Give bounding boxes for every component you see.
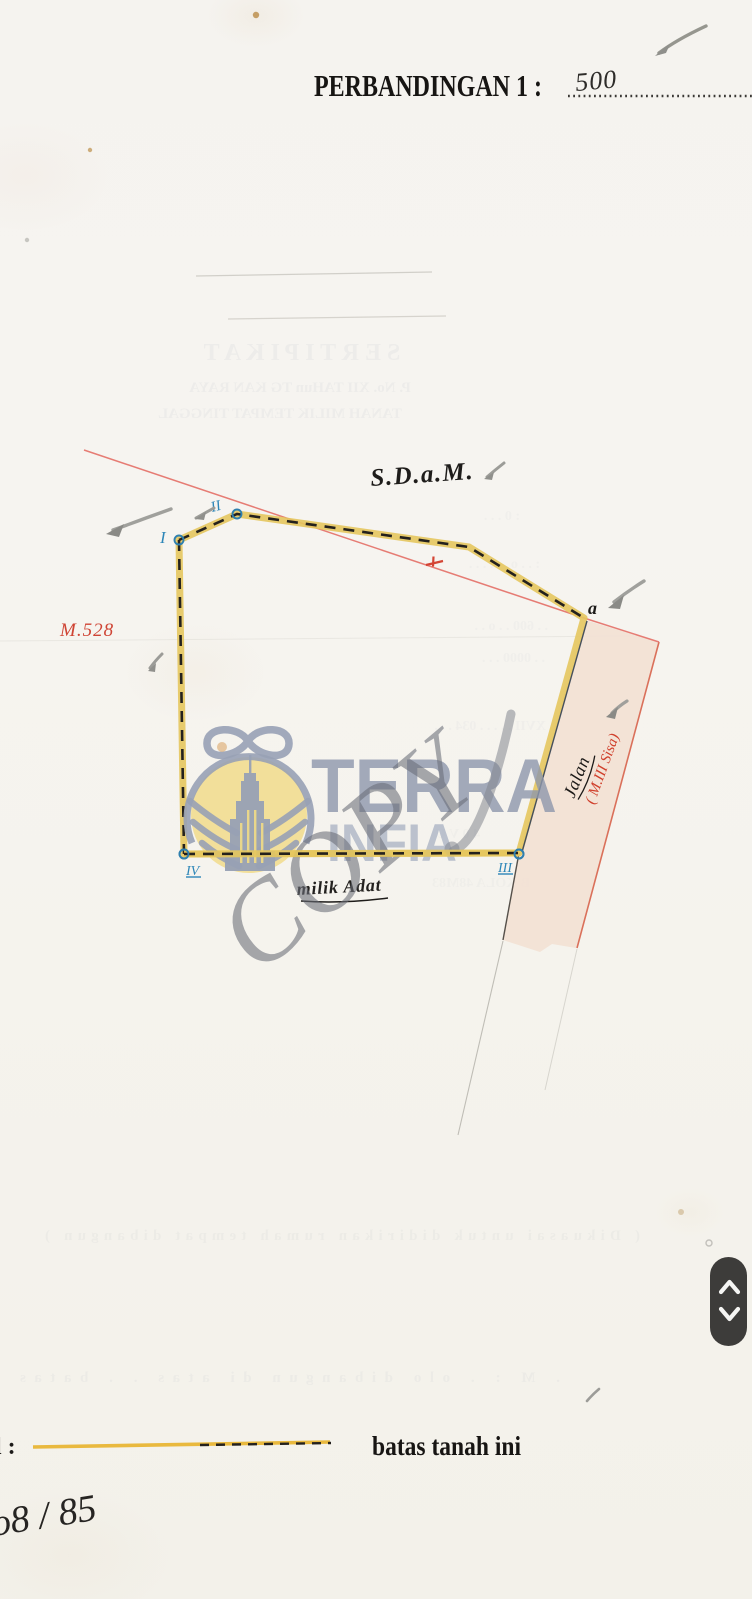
svg-text:I: I bbox=[159, 528, 167, 547]
svg-text:: 0 . . .: : 0 . . . bbox=[484, 509, 520, 524]
svg-text:a: a bbox=[588, 598, 597, 618]
svg-text:S.D.a.M.: S.D.a.M. bbox=[370, 458, 475, 492]
svg-text:. . XVII . . . . . 034 . . .: . . XVII . . . . . 034 . . . bbox=[434, 719, 560, 734]
svg-text:. . 600 . . o . .: . . 600 . . o . . bbox=[475, 619, 549, 634]
svg-text:II: II bbox=[208, 498, 224, 516]
svg-text:( Dikuasai untuk didirikan: ( Dikuasai untuk didirikan rumah tempat … bbox=[45, 1228, 640, 1244]
svg-text:to8 / 85: to8 / 85 bbox=[0, 1487, 99, 1547]
svg-text:batas tanah ini: batas tanah ini bbox=[372, 1431, 521, 1461]
svg-text:. M : . olo dibangun di at: . M : . olo dibangun di atas . . batas bbox=[20, 1370, 560, 1386]
svg-text:P. No. XII TAHun TG KAN RAYA: P. No. XII TAHun TG KAN RAYA bbox=[189, 380, 411, 396]
svg-text:M.528: M.528 bbox=[59, 620, 114, 641]
svg-text:S E R T I P I K A T: S E R T I P I K A T bbox=[204, 340, 401, 366]
svg-text:TANAH MILIK TEMPAT TINGGAL: TANAH MILIK TEMPAT TINGGAL bbox=[158, 406, 402, 422]
svg-text:l :: l : bbox=[0, 1434, 16, 1460]
svg-text:PERBANDINGAN 1 :: PERBANDINGAN 1 : bbox=[314, 68, 542, 103]
svg-text:500: 500 bbox=[574, 64, 618, 97]
svg-text:. . 0000 . . .: . . 0000 . . . bbox=[482, 651, 545, 666]
